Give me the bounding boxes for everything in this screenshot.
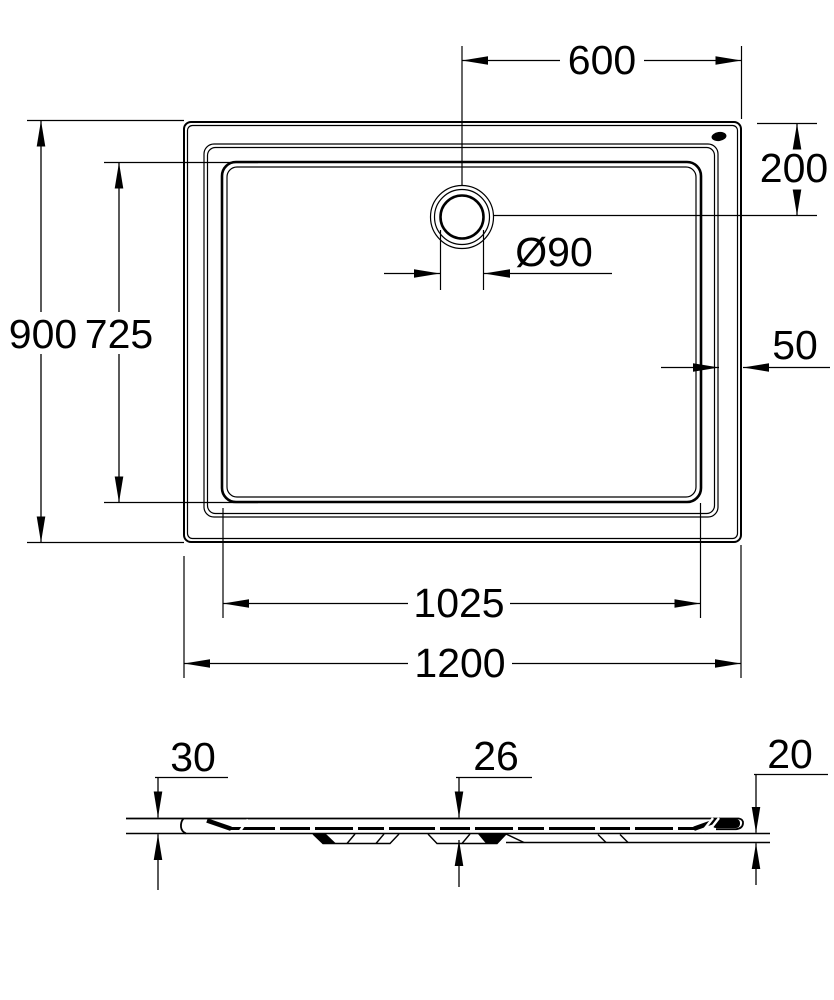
tray-rim-edge: [204, 144, 718, 517]
shower-tray-drawing: 600 200 Ø90 50: [0, 0, 834, 1000]
outlet-rib: [598, 835, 606, 843]
housing-left-fill: [313, 834, 336, 844]
outlet-slant: [506, 834, 524, 843]
dim-26: 26: [456, 733, 532, 887]
tray-rim-edge-inner-contour: [208, 148, 715, 514]
dim-200: 200: [494, 124, 828, 216]
outlet-rib: [620, 835, 628, 843]
dim-1025: 1025: [223, 503, 701, 626]
dim-label-d90: Ø90: [515, 229, 593, 275]
housing-rib: [462, 834, 470, 844]
top-view: 600 200 Ø90 50: [9, 37, 830, 686]
profile-left-cap: [181, 819, 186, 834]
housing-rib: [376, 834, 384, 844]
side-view: 30 26 20: [126, 731, 828, 890]
housing-rib: [347, 834, 355, 844]
floor-slope-left: [207, 821, 231, 829]
dim-label-1200: 1200: [414, 640, 505, 686]
dim-50: 50: [661, 322, 830, 368]
dim-label-900: 900: [9, 311, 77, 357]
tray-outer-edge-inner-contour: [188, 126, 738, 539]
dim-label-30: 30: [170, 734, 216, 780]
dim-30: 30: [155, 734, 228, 890]
drain-inner-circle: [441, 196, 484, 239]
dim-label-200: 200: [760, 145, 828, 191]
dim-label-20: 20: [767, 731, 813, 777]
corner-mark: [711, 131, 727, 142]
dim-drain-diameter: Ø90: [384, 229, 612, 290]
dim-20: 20: [754, 731, 828, 885]
drain-middle-circle: [435, 190, 490, 245]
dim-label-26: 26: [473, 733, 519, 779]
tray-floor-edge: [222, 162, 701, 502]
dim-label-50: 50: [772, 322, 818, 368]
dim-label-1025: 1025: [413, 580, 504, 626]
dim-600: 600: [462, 37, 742, 119]
dim-label-600: 600: [568, 37, 636, 83]
technical-drawing-page: 600 200 Ø90 50: [0, 0, 834, 1000]
dim-label-725: 725: [85, 311, 153, 357]
tray-floor-inner-contour: [227, 167, 696, 497]
dim-725: 725: [85, 163, 258, 503]
